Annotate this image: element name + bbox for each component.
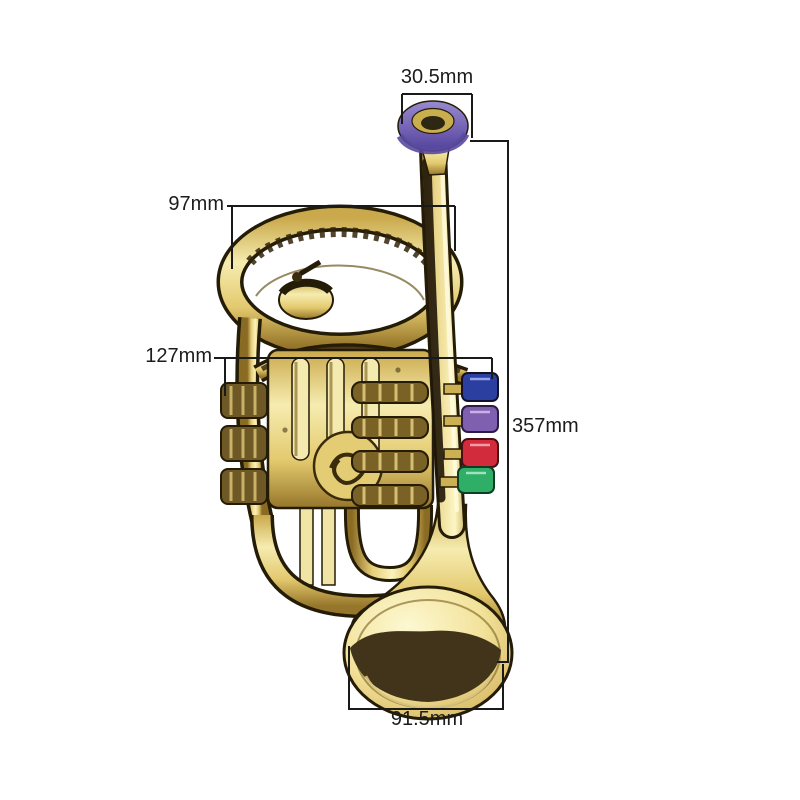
valve-slide-legs (300, 505, 335, 585)
mouthpiece-ring (398, 101, 468, 151)
valve-caps-left (221, 383, 267, 504)
product-dimension-diagram: 30.5mm 97mm 127mm 357mm 91.5mm (0, 0, 800, 800)
dimension-label-bell-diameter: 91.5mm (367, 708, 487, 731)
loop-finial-ornament (279, 262, 333, 319)
inner-slide-u (352, 505, 425, 574)
mouthpiece (398, 101, 468, 175)
dimension-label-overall-height: 357mm (512, 415, 632, 438)
dimension-label-mouthpiece-width: 30.5mm (377, 66, 497, 89)
upper-loop (230, 218, 450, 346)
dimension-label-upper-loop-width: 97mm (116, 193, 224, 216)
dimension-label-valve-section-width: 127mm (104, 345, 212, 368)
trumpet-illustration (0, 0, 800, 800)
